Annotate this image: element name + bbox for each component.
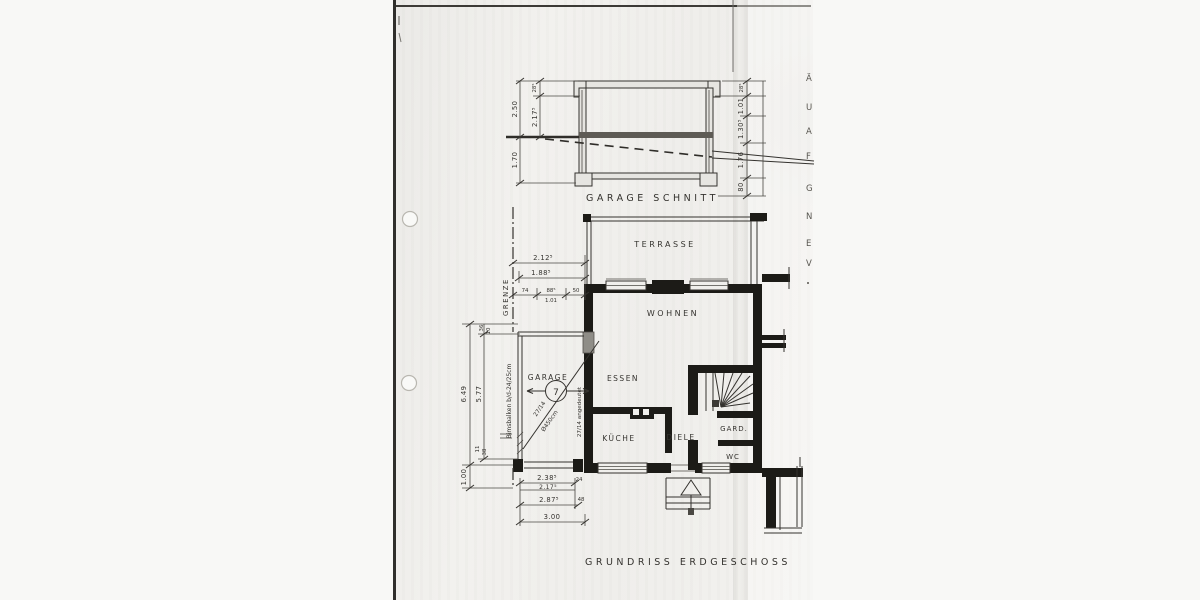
edge-letter: U — [806, 103, 812, 113]
edge-letter: G — [806, 184, 813, 194]
room-label-wohnen: WOHNEN — [647, 309, 699, 318]
section-dimensions-left: 28⁵ 2.50 2.17⁵ 1.70 — [511, 78, 580, 186]
dim-label: 80 — [737, 182, 745, 191]
boundary-walls-right — [762, 267, 803, 533]
room-label-kueche: KÜCHE — [602, 434, 635, 443]
edge-letter: N — [806, 212, 812, 222]
edge-letter: Ä — [806, 73, 812, 84]
punch-hole — [402, 376, 417, 391]
dim-label: 1.01 — [737, 98, 745, 115]
edge-letter: V — [806, 259, 812, 269]
entrance-steps — [666, 478, 710, 515]
dim-label: 1.01 — [545, 298, 557, 304]
edge-letter: F — [806, 152, 811, 162]
punch-holes — [402, 212, 418, 391]
section-title: GARAGE SCHNITT — [586, 193, 719, 204]
dim-label: 2.38⁵ — [537, 474, 557, 482]
room-label-essen: ESSEN — [607, 374, 639, 383]
wc-window — [702, 463, 730, 473]
dim-label: 1.88⁵ — [531, 269, 551, 277]
dim-label: 1.00 — [460, 469, 468, 486]
wall-note: 27/14 angedeutet — [577, 386, 583, 437]
dim-label: 1.76 — [737, 152, 745, 169]
dim-label: 2.17⁵ — [539, 484, 557, 491]
dim-label: 3.00 — [544, 513, 561, 521]
room-label-diele: DIELE — [666, 433, 695, 442]
dim-label: 6.49 — [460, 386, 468, 403]
direction-arrow — [681, 480, 701, 495]
page-edge-marks — [396, 0, 811, 72]
dim-label: 11 — [475, 446, 481, 453]
dim-label: 2.50 — [511, 101, 519, 118]
position-number: 7 — [553, 388, 559, 398]
dim-label: 74 — [522, 288, 529, 294]
dim-label: 1.70 — [511, 152, 519, 169]
diagonal-note-a: 27/14 — [533, 401, 548, 418]
dim-label: 5.77 — [475, 386, 483, 403]
page-edge-letters: Ä U A F G N E V — [806, 73, 813, 284]
dim-label: 10 — [486, 327, 492, 334]
plan-title: GRUNDRISS ERDGESCHOSS — [585, 557, 791, 568]
north-wall — [584, 279, 762, 294]
edge-letter: E — [806, 239, 811, 249]
dim-label: 2.12⁵ — [533, 254, 553, 262]
dim-label: 48 — [578, 497, 585, 503]
dim-label: 38 — [482, 448, 488, 455]
dim-label: 50 — [573, 288, 580, 294]
floor-plan-drawing: TERRASSE WOHNEN ESSEN GARAGE KÜCHE DIELE… — [460, 207, 803, 568]
kitchen-window — [598, 463, 647, 473]
room-label-terrasse: TERRASSE — [633, 240, 695, 249]
south-wall — [584, 463, 762, 473]
edge-letter: A — [806, 127, 812, 137]
dim-label: 88⁵ — [546, 287, 555, 294]
dim-label: 2.17⁵ — [531, 107, 539, 127]
plan-dimensions-bottom: 2.38⁵ 2.17⁵ 24 2.87⁵ 48 3.00 — [516, 474, 589, 526]
drawing-linework: 28⁵ 2.50 2.17⁵ 1.70 — [0, 0, 1200, 600]
staircase — [706, 373, 753, 411]
dim-label: 2.87⁵ — [539, 496, 559, 504]
beam-note: Bimsbalken b/d-24/25cm — [506, 363, 513, 438]
room-label-gard: GARD. — [720, 425, 748, 433]
dim-label: 36 — [479, 324, 485, 331]
boundary-label: GRENZE — [502, 278, 510, 316]
room-label-wc: WC — [726, 453, 740, 461]
scanned-drawing-viewport: 28⁵ 2.50 2.17⁵ 1.70 — [0, 0, 1200, 600]
dim-label: 28⁵ — [531, 83, 538, 92]
dim-label: 1.30⁵ — [737, 119, 745, 139]
room-label-garage: GARAGE — [528, 373, 568, 382]
dim-label: 24 — [576, 477, 583, 483]
section-dimensions-right: 28⁵ 1.01 1.30⁵ 1.76 80 — [715, 78, 766, 199]
plan-dimensions-top: 2.12⁵ 1.88⁵ 74 88⁵ 1.01 50 — [509, 254, 589, 304]
garage-section-drawing: 28⁵ 2.50 2.17⁵ 1.70 — [506, 78, 814, 204]
punch-hole — [403, 212, 418, 227]
dim-label: 28⁵ — [738, 83, 745, 92]
